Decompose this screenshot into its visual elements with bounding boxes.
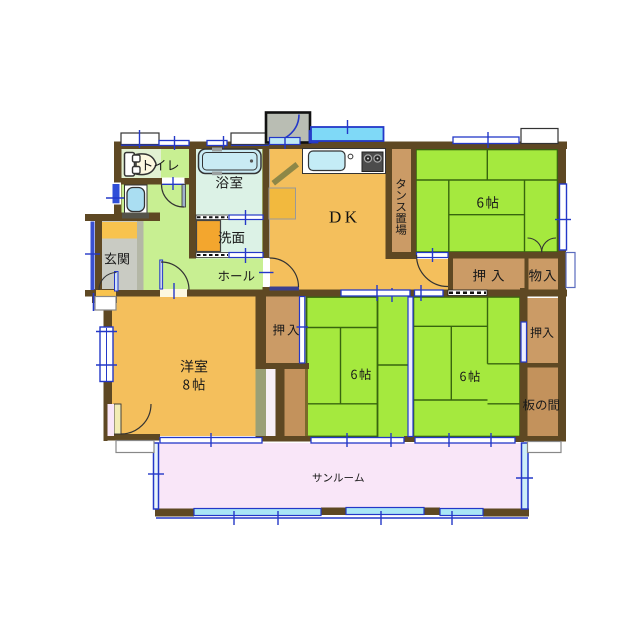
- svg-text:DK: DK: [329, 208, 361, 227]
